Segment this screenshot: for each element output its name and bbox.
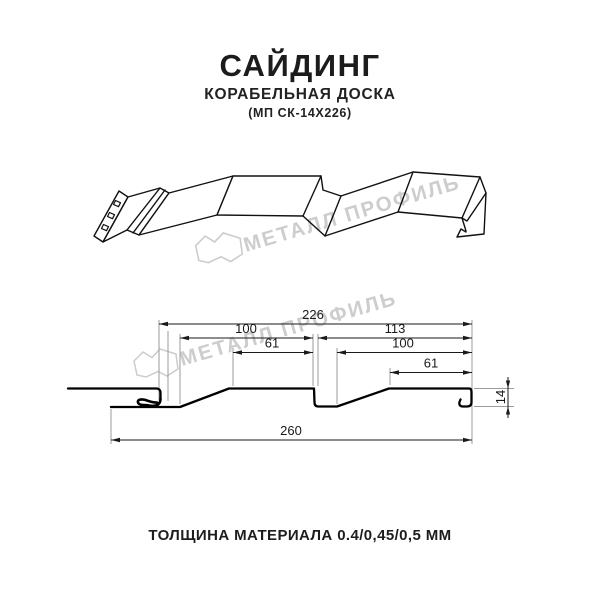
profile-outline — [68, 389, 472, 408]
technical-drawing: МЕТАЛЛ ПРОФИЛЬ МЕТАЛЛ ПРОФИЛЬ — [0, 0, 600, 600]
dim-61-left: 61 — [265, 336, 279, 351]
catalog-page: САЙДИНГ КОРАБЕЛЬНАЯ ДОСКА (МП СК-14Х226)… — [0, 0, 600, 600]
dimension-lines — [111, 324, 508, 440]
extension-lines — [111, 320, 514, 444]
dim-226: 226 — [302, 307, 324, 322]
panel-profile — [111, 389, 472, 408]
dim-113: 113 — [385, 321, 406, 336]
dim-61-right: 61 — [424, 356, 438, 371]
dimension-arrows — [111, 322, 510, 442]
dim-260: 260 — [280, 423, 302, 438]
left-flange — [68, 389, 161, 400]
dim-100-left: 100 — [235, 321, 257, 336]
left-hook — [138, 399, 161, 406]
panel1-face — [217, 176, 321, 216]
dim-14: 14 — [493, 390, 508, 404]
svg-text:МЕТАЛЛ ПРОФИЛЬ: МЕТАЛЛ ПРОФИЛЬ — [177, 287, 400, 371]
end-cap — [462, 177, 486, 221]
material-thickness-caption: ТОЛЩИНА МАТЕРИАЛА 0.4/0,45/0,5 ММ — [0, 527, 600, 544]
dim-100-right: 100 — [392, 336, 414, 351]
